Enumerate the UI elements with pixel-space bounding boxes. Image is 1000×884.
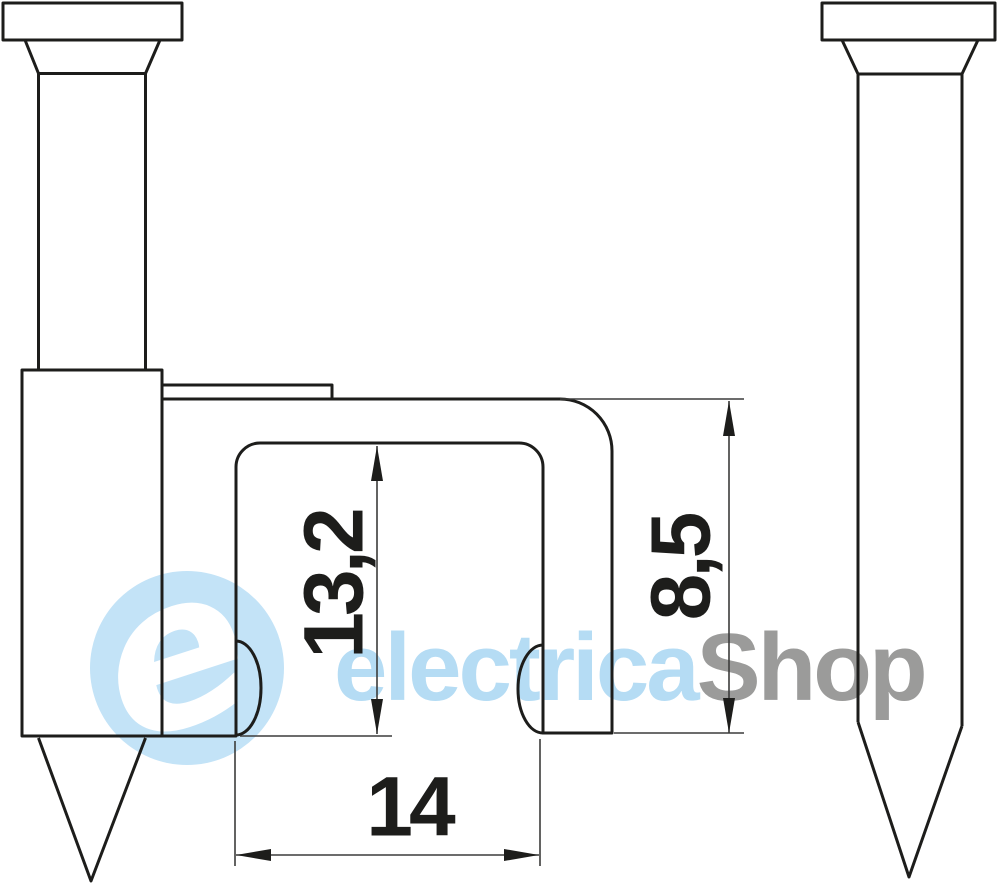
nail-point-side (858, 722, 962, 877)
technical-drawing-canvas: e electricaShop (0, 0, 1000, 884)
dimension-label-inner-height: 13,2 (286, 510, 380, 659)
arrow-left-icon (236, 849, 271, 861)
arrow-right-icon (504, 849, 539, 861)
nail-neck-side (842, 40, 978, 74)
brand-watermark-text: electricaShop (334, 614, 925, 721)
nail-point-front (39, 738, 146, 881)
clip-front-view (3, 3, 612, 881)
arrow-up-icon (723, 401, 735, 436)
drawing-page: e electricaShop (0, 0, 1000, 884)
clip-top-tab (162, 385, 332, 399)
dimension-label-inner-width: 14 (366, 759, 456, 853)
watermark-layer: e electricaShop (68, 514, 925, 791)
nail-neck-front (25, 40, 160, 74)
dimension-label-outer-height: 8,5 (633, 513, 727, 620)
nail-head-front (3, 3, 182, 40)
brand-logo-e-icon: e (68, 514, 279, 791)
nail-head-side (822, 3, 995, 40)
nail-shaft-front (39, 74, 146, 371)
brand-watermark-primary: electrica (334, 614, 700, 721)
arrow-up-icon (371, 446, 383, 481)
nail-side-view (822, 3, 995, 877)
